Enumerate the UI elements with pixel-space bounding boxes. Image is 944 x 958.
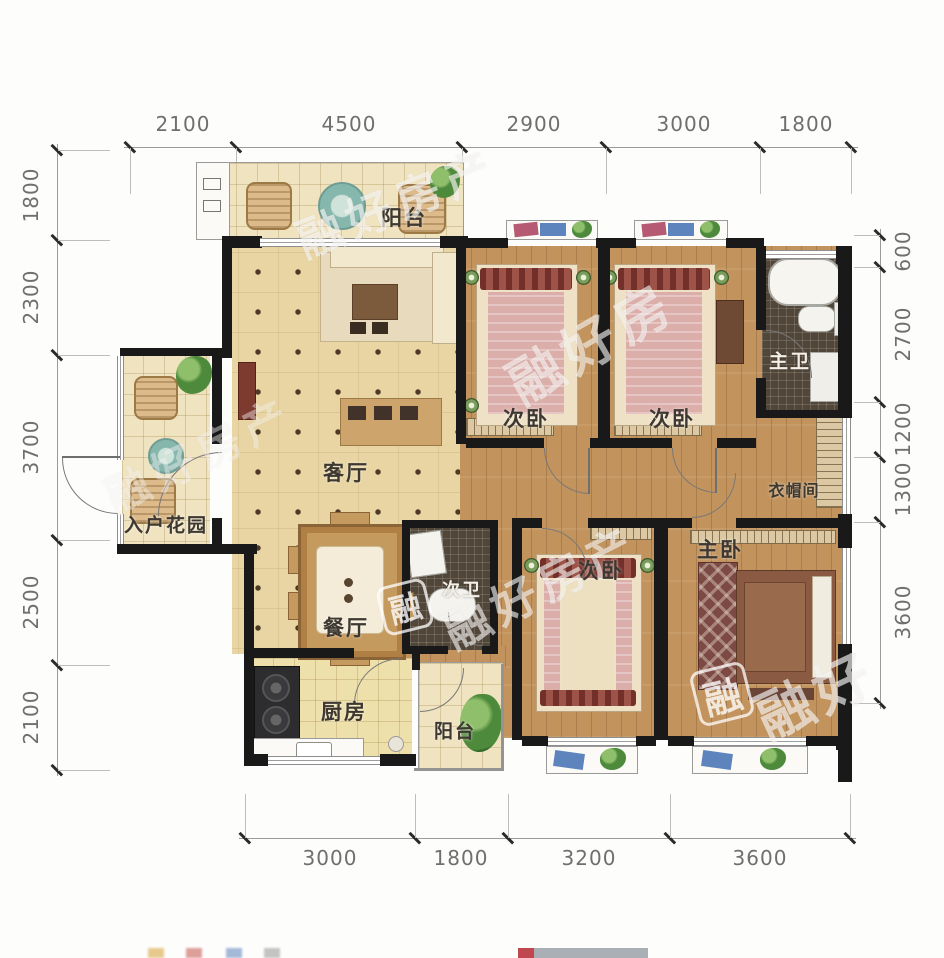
- wall-segment: [838, 644, 852, 782]
- equipment-icon: [203, 178, 221, 190]
- dim-label-top-2: 4500: [304, 112, 394, 136]
- room-label-bedroom-bottom: 次卧: [578, 555, 624, 585]
- wall-segment: [758, 410, 846, 418]
- room-label-balcony-top: 阳台: [381, 202, 427, 232]
- balcony-wall: [414, 768, 504, 771]
- coffee-table: [352, 284, 398, 320]
- table-decor: [344, 578, 353, 587]
- bedroom-rug: [698, 562, 738, 690]
- wall-segment: [402, 646, 448, 654]
- wall-segment: [717, 438, 756, 448]
- bed-pillows: [618, 268, 710, 290]
- tv-cabinet: [238, 362, 256, 420]
- bay-cushion: [540, 223, 566, 236]
- dim-ext: [854, 522, 880, 523]
- balcony-wall: [501, 664, 504, 771]
- wall-segment: [588, 518, 654, 528]
- wall-segment: [806, 736, 838, 746]
- room-label-dining: 餐厅: [323, 612, 369, 642]
- dim-ext: [58, 770, 110, 771]
- burner: [262, 674, 290, 702]
- equipment-icon: [203, 200, 221, 212]
- dim-ext: [58, 540, 110, 541]
- sofa: [330, 246, 444, 268]
- window: [694, 737, 806, 746]
- cushion: [400, 406, 418, 420]
- wall-segment: [522, 736, 548, 746]
- dim-label-left-2: 2300: [19, 252, 43, 342]
- entry-door-arc: [62, 458, 118, 514]
- dim-ext: [58, 150, 110, 151]
- room-label-bedroom-top-right: 次卧: [649, 403, 695, 433]
- room-label-bedroom-top-left: 次卧: [503, 403, 549, 433]
- dim-ext: [854, 703, 880, 704]
- wall-segment: [117, 544, 257, 554]
- wall-segment: [636, 736, 656, 746]
- dim-ext: [130, 148, 131, 194]
- wall-segment: [222, 236, 232, 358]
- wall-segment: [756, 246, 766, 330]
- dim-label-right-5: 3600: [891, 567, 915, 657]
- dim-label-bottom-2: 1800: [416, 846, 506, 870]
- wall-segment: [654, 518, 668, 740]
- window: [762, 250, 838, 259]
- bay-cushion: [513, 222, 538, 237]
- dim-ext: [760, 148, 761, 194]
- bed-duvet: [626, 292, 702, 414]
- room-label-second-bath: 次卫: [442, 576, 482, 602]
- dim-label-left-4: 2500: [19, 557, 43, 647]
- dim-label-top-1: 2100: [138, 112, 228, 136]
- bay-cushion: [668, 223, 694, 236]
- room-label-master-bedroom: 主卧: [697, 534, 743, 564]
- wall-segment: [466, 238, 508, 248]
- dim-label-right-2: 2700: [891, 289, 915, 379]
- window: [117, 514, 124, 546]
- room-label-entry-garden: 入户花园: [124, 511, 208, 538]
- bottom-dim-line: [239, 838, 856, 839]
- bedside-lamp: [464, 398, 479, 413]
- dim-ext: [854, 267, 880, 268]
- wall-segment: [212, 352, 222, 444]
- cropped-logo-fragment: [264, 948, 280, 958]
- bedside-lamp: [524, 558, 539, 573]
- window: [117, 356, 124, 460]
- wall-segment: [590, 438, 610, 448]
- cropped-logo-fragment: [226, 948, 242, 958]
- bedside-lamp: [576, 270, 591, 285]
- dim-label-left-3: 3700: [19, 402, 43, 492]
- wall-segment: [838, 258, 852, 418]
- dim-label-bottom-3: 3200: [544, 846, 634, 870]
- dim-label-right-4: 1300: [891, 444, 915, 534]
- wall-segment: [668, 736, 694, 746]
- wicker-chair: [246, 182, 292, 230]
- bed-duvet: [488, 292, 564, 414]
- cushion: [372, 322, 388, 334]
- cushion: [348, 406, 366, 420]
- wall-segment: [244, 552, 254, 764]
- bedside-lamp: [714, 270, 729, 285]
- wall-segment: [838, 514, 852, 548]
- room-label-master-bath: 主卫: [769, 347, 811, 374]
- room-label-cloakroom: 衣帽间: [768, 477, 819, 501]
- wall-segment: [482, 646, 498, 654]
- window: [268, 756, 380, 765]
- cushion: [350, 322, 366, 334]
- dim-ext: [415, 794, 416, 838]
- wall-segment: [402, 520, 410, 654]
- dim-label-top-3: 2900: [489, 112, 579, 136]
- table-decor: [344, 594, 353, 603]
- dim-ext: [854, 402, 880, 403]
- dim-label-top-4: 3000: [639, 112, 729, 136]
- bed-side: [544, 580, 560, 692]
- armchair: [716, 300, 744, 364]
- wall-segment: [244, 648, 354, 658]
- wall-segment: [212, 518, 222, 548]
- bed-pillows: [480, 268, 572, 290]
- wall-segment: [456, 246, 466, 444]
- room-label-kitchen: 厨房: [321, 696, 367, 726]
- bed-side: [616, 580, 632, 692]
- door-leaf: [588, 448, 590, 494]
- dim-ext: [508, 794, 509, 838]
- wicker-chair: [134, 376, 178, 420]
- bedside-lamp: [640, 558, 655, 573]
- bed-footer: [540, 690, 636, 706]
- wall-segment: [120, 348, 222, 356]
- window: [842, 548, 851, 646]
- dim-ext: [245, 794, 246, 838]
- wall-segment: [512, 518, 522, 740]
- bathtub: [768, 258, 842, 306]
- dim-ext: [670, 794, 671, 838]
- window: [548, 737, 636, 746]
- wall-segment: [836, 736, 852, 750]
- bay-cushion: [641, 222, 666, 237]
- cropped-logo-fragment: [148, 948, 164, 958]
- bedside-lamp: [464, 270, 479, 285]
- dim-ext: [854, 457, 880, 458]
- dim-label-left-5: 2100: [19, 672, 43, 762]
- bathroom-sink: [405, 530, 447, 579]
- wall-segment: [412, 652, 420, 670]
- dim-ext: [850, 794, 851, 838]
- wall-segment: [380, 754, 416, 766]
- bed-duvet: [744, 582, 806, 672]
- right-dim-line: [880, 229, 881, 709]
- wall-segment: [402, 520, 498, 528]
- dim-ext: [606, 148, 607, 194]
- bed-duvet: [562, 580, 614, 692]
- cushion: [374, 406, 392, 420]
- room-label-living: 客厅: [323, 457, 369, 487]
- cropped-banner-fragment: [518, 948, 648, 958]
- toilet: [798, 306, 836, 332]
- wall-segment: [466, 438, 544, 448]
- bed-pillows: [812, 576, 832, 678]
- bed-bench: [748, 688, 814, 700]
- wall-segment: [668, 518, 692, 528]
- entry-door-leaf: [62, 456, 120, 458]
- room-label-balcony-bottom: 阳台: [434, 717, 476, 744]
- dim-ext: [58, 355, 110, 356]
- dim-label-bottom-4: 3600: [715, 846, 805, 870]
- sink-basin: [388, 736, 404, 752]
- cloakroom-wardrobe: [816, 416, 844, 508]
- dim-ext: [58, 240, 110, 241]
- wall-segment: [490, 520, 498, 654]
- dim-label-top-5: 1800: [761, 112, 851, 136]
- cropped-logo-fragment: [186, 948, 202, 958]
- dim-ext: [58, 665, 110, 666]
- cropped-banner-fragment: [518, 948, 534, 958]
- round-table: [318, 182, 366, 230]
- wall-segment: [610, 438, 672, 448]
- window: [260, 238, 442, 247]
- burner: [262, 706, 290, 734]
- dim-label-left-1: 1800: [19, 150, 43, 240]
- dim-label-bottom-1: 3000: [285, 846, 375, 870]
- wall-segment: [522, 518, 542, 528]
- wall-segment: [244, 754, 268, 766]
- dim-label-right-1: 600: [891, 206, 915, 296]
- floor-plan-page: 2100 4500 2900 3000 1800 1800 2300 3700 …: [0, 0, 944, 958]
- wall-segment: [736, 518, 838, 528]
- dim-ext: [851, 148, 852, 194]
- dim-ext: [854, 235, 880, 236]
- window: [842, 418, 851, 516]
- wall-segment: [598, 246, 610, 438]
